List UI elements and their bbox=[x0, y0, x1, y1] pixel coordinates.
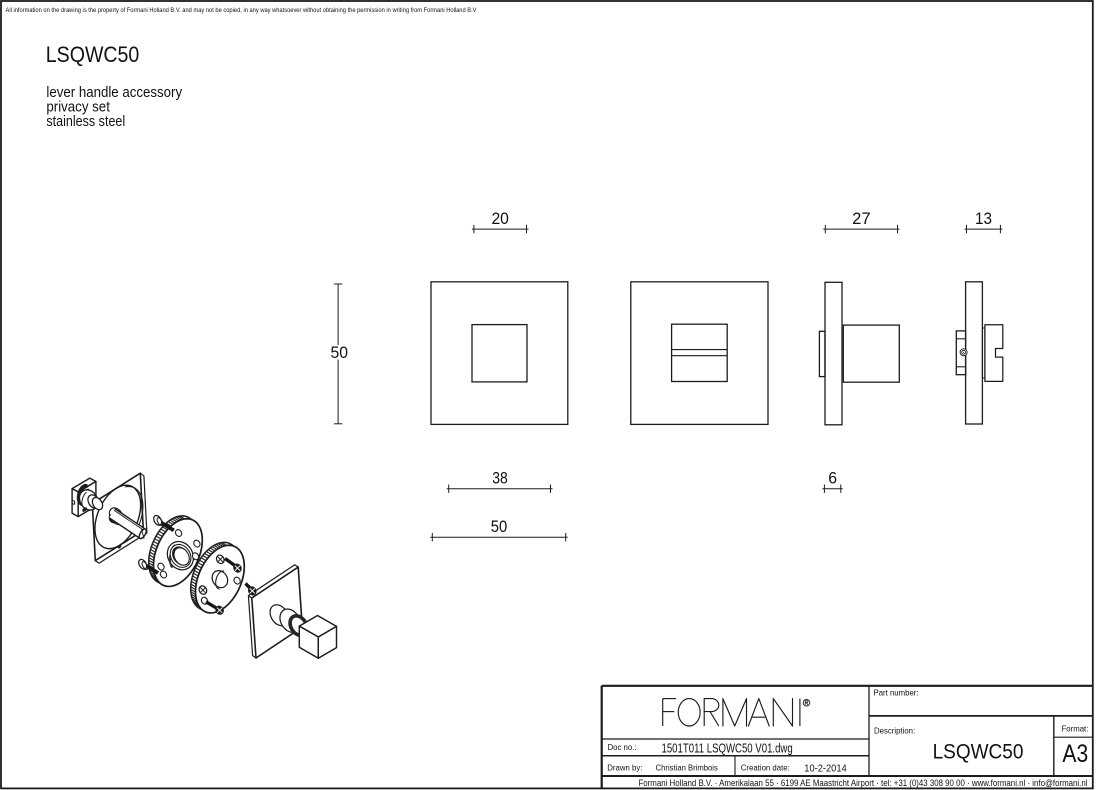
svg-text:A3: A3 bbox=[1062, 740, 1088, 768]
svg-text:10-2-2014: 10-2-2014 bbox=[804, 763, 847, 775]
svg-text:1501T011 LSQWC50 V01.dwg: 1501T011 LSQWC50 V01.dwg bbox=[662, 741, 793, 755]
svg-text:Description:: Description: bbox=[874, 727, 915, 736]
svg-text:27: 27 bbox=[852, 210, 871, 228]
svg-text:stainless steel: stainless steel bbox=[46, 114, 125, 130]
svg-text:Formani Holland B.V. · Amerik: Formani Holland B.V. · Amerikalaan 55 · … bbox=[639, 778, 1088, 789]
svg-text:20: 20 bbox=[491, 210, 509, 228]
svg-text:LSQWC50: LSQWC50 bbox=[46, 42, 140, 67]
svg-text:Creation date:: Creation date: bbox=[741, 764, 790, 773]
svg-text:38: 38 bbox=[492, 470, 508, 488]
svg-text:13: 13 bbox=[975, 210, 992, 228]
svg-text:Format:: Format: bbox=[1062, 724, 1089, 733]
svg-text:All information on the drawing: All information on the drawing is the pr… bbox=[6, 7, 478, 14]
svg-text:6: 6 bbox=[828, 470, 837, 488]
svg-text:Drawn by:: Drawn by: bbox=[607, 764, 642, 773]
svg-text:Part number:: Part number: bbox=[874, 689, 919, 698]
svg-text:50: 50 bbox=[491, 518, 508, 536]
svg-text:LSQWC50: LSQWC50 bbox=[933, 740, 1024, 763]
svg-text:Christian Brimbois: Christian Brimbois bbox=[656, 764, 718, 773]
svg-text:Doc no.:: Doc no.: bbox=[608, 743, 637, 752]
svg-text:50: 50 bbox=[331, 344, 349, 362]
